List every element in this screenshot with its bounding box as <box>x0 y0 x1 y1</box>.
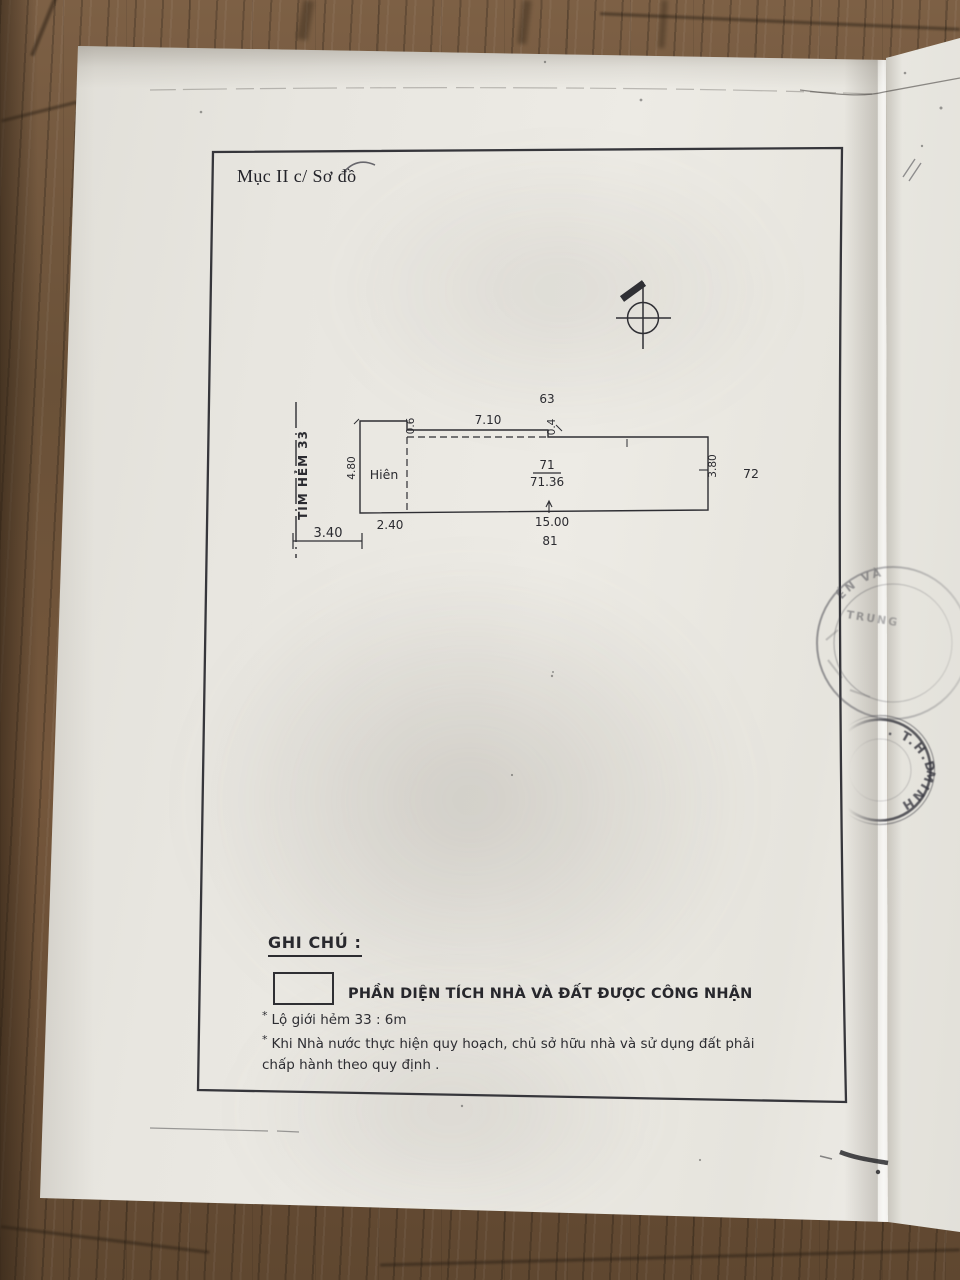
dim-porch-width: 2.40 <box>377 518 404 532</box>
dim-step-right: 0.4 <box>546 418 558 435</box>
section-title: Mục II c/ Sơ đồ <box>237 166 357 187</box>
note-bullet: * <box>262 1009 272 1022</box>
dim-canopy: 7.10 <box>475 413 502 427</box>
round-stamp-mid-text: TRUNG <box>846 608 901 629</box>
dim-porch-depth: 4.80 <box>346 456 358 479</box>
photo-of-document: { "document": { "section_title": "Mục II… <box>0 0 960 1280</box>
note-bullet: * <box>262 1033 272 1046</box>
legend-recognized-area-label: PHẦN DIỆN TÍCH NHÀ VÀ ĐẤT ĐƯỢC CÔNG NHẬN <box>348 986 752 1002</box>
porch-label: Hiên <box>370 467 399 482</box>
area-value: 71.36 <box>530 475 564 489</box>
legend-heading: GHI CHÚ : <box>268 933 362 957</box>
north-arrow-icon <box>616 282 671 349</box>
lot-number-bottom: 81 <box>542 534 557 548</box>
note-alley-width: *Lộ giới hẻm 33 : 6m <box>262 1005 407 1031</box>
drawing-labels: 63 7.10 0.6 0.4 TIM HẺM 33 4.80 Hiên 71 … <box>294 392 759 548</box>
dim-length: 15.00 <box>535 515 569 529</box>
dim-right-depth: 3.80 <box>707 454 719 477</box>
note-planning: *Khi Nhà nước thực hiện quy hoạch, chủ s… <box>262 1029 784 1076</box>
survey-drawing-layer: 63 7.10 0.6 0.4 TIM HẺM 33 4.80 Hiên 71 … <box>0 0 960 1280</box>
ink-smudge <box>840 1152 888 1163</box>
porch-divider-dashed <box>407 437 548 512</box>
legend-swatch <box>273 972 334 1005</box>
lot-number-top: 63 <box>539 392 554 406</box>
edge-stamp-bottom-text: MINH <box>898 768 939 814</box>
faint-round-stamp: ẾN VÀ TRUNG <box>817 566 960 719</box>
dim-alley-offset: 3.40 <box>314 526 343 541</box>
note-alley-text: Lộ giới hẻm 33 : 6m <box>272 1012 407 1028</box>
dim-step-left: 0.6 <box>405 417 417 434</box>
area-code: 71 <box>539 458 554 472</box>
survey-tick <box>354 419 359 424</box>
lot-number-right: 72 <box>743 466 759 481</box>
document-border-frame <box>198 148 846 1102</box>
svg-text:MINH: MINH <box>898 768 939 814</box>
edge-round-stamp: . T.H.D MINH <box>826 716 940 825</box>
note-planning-text: Khi Nhà nước thực hiện quy hoạch, chủ sở… <box>262 1036 755 1073</box>
alley-centerline-label: TIM HẺM 33 <box>294 430 310 520</box>
